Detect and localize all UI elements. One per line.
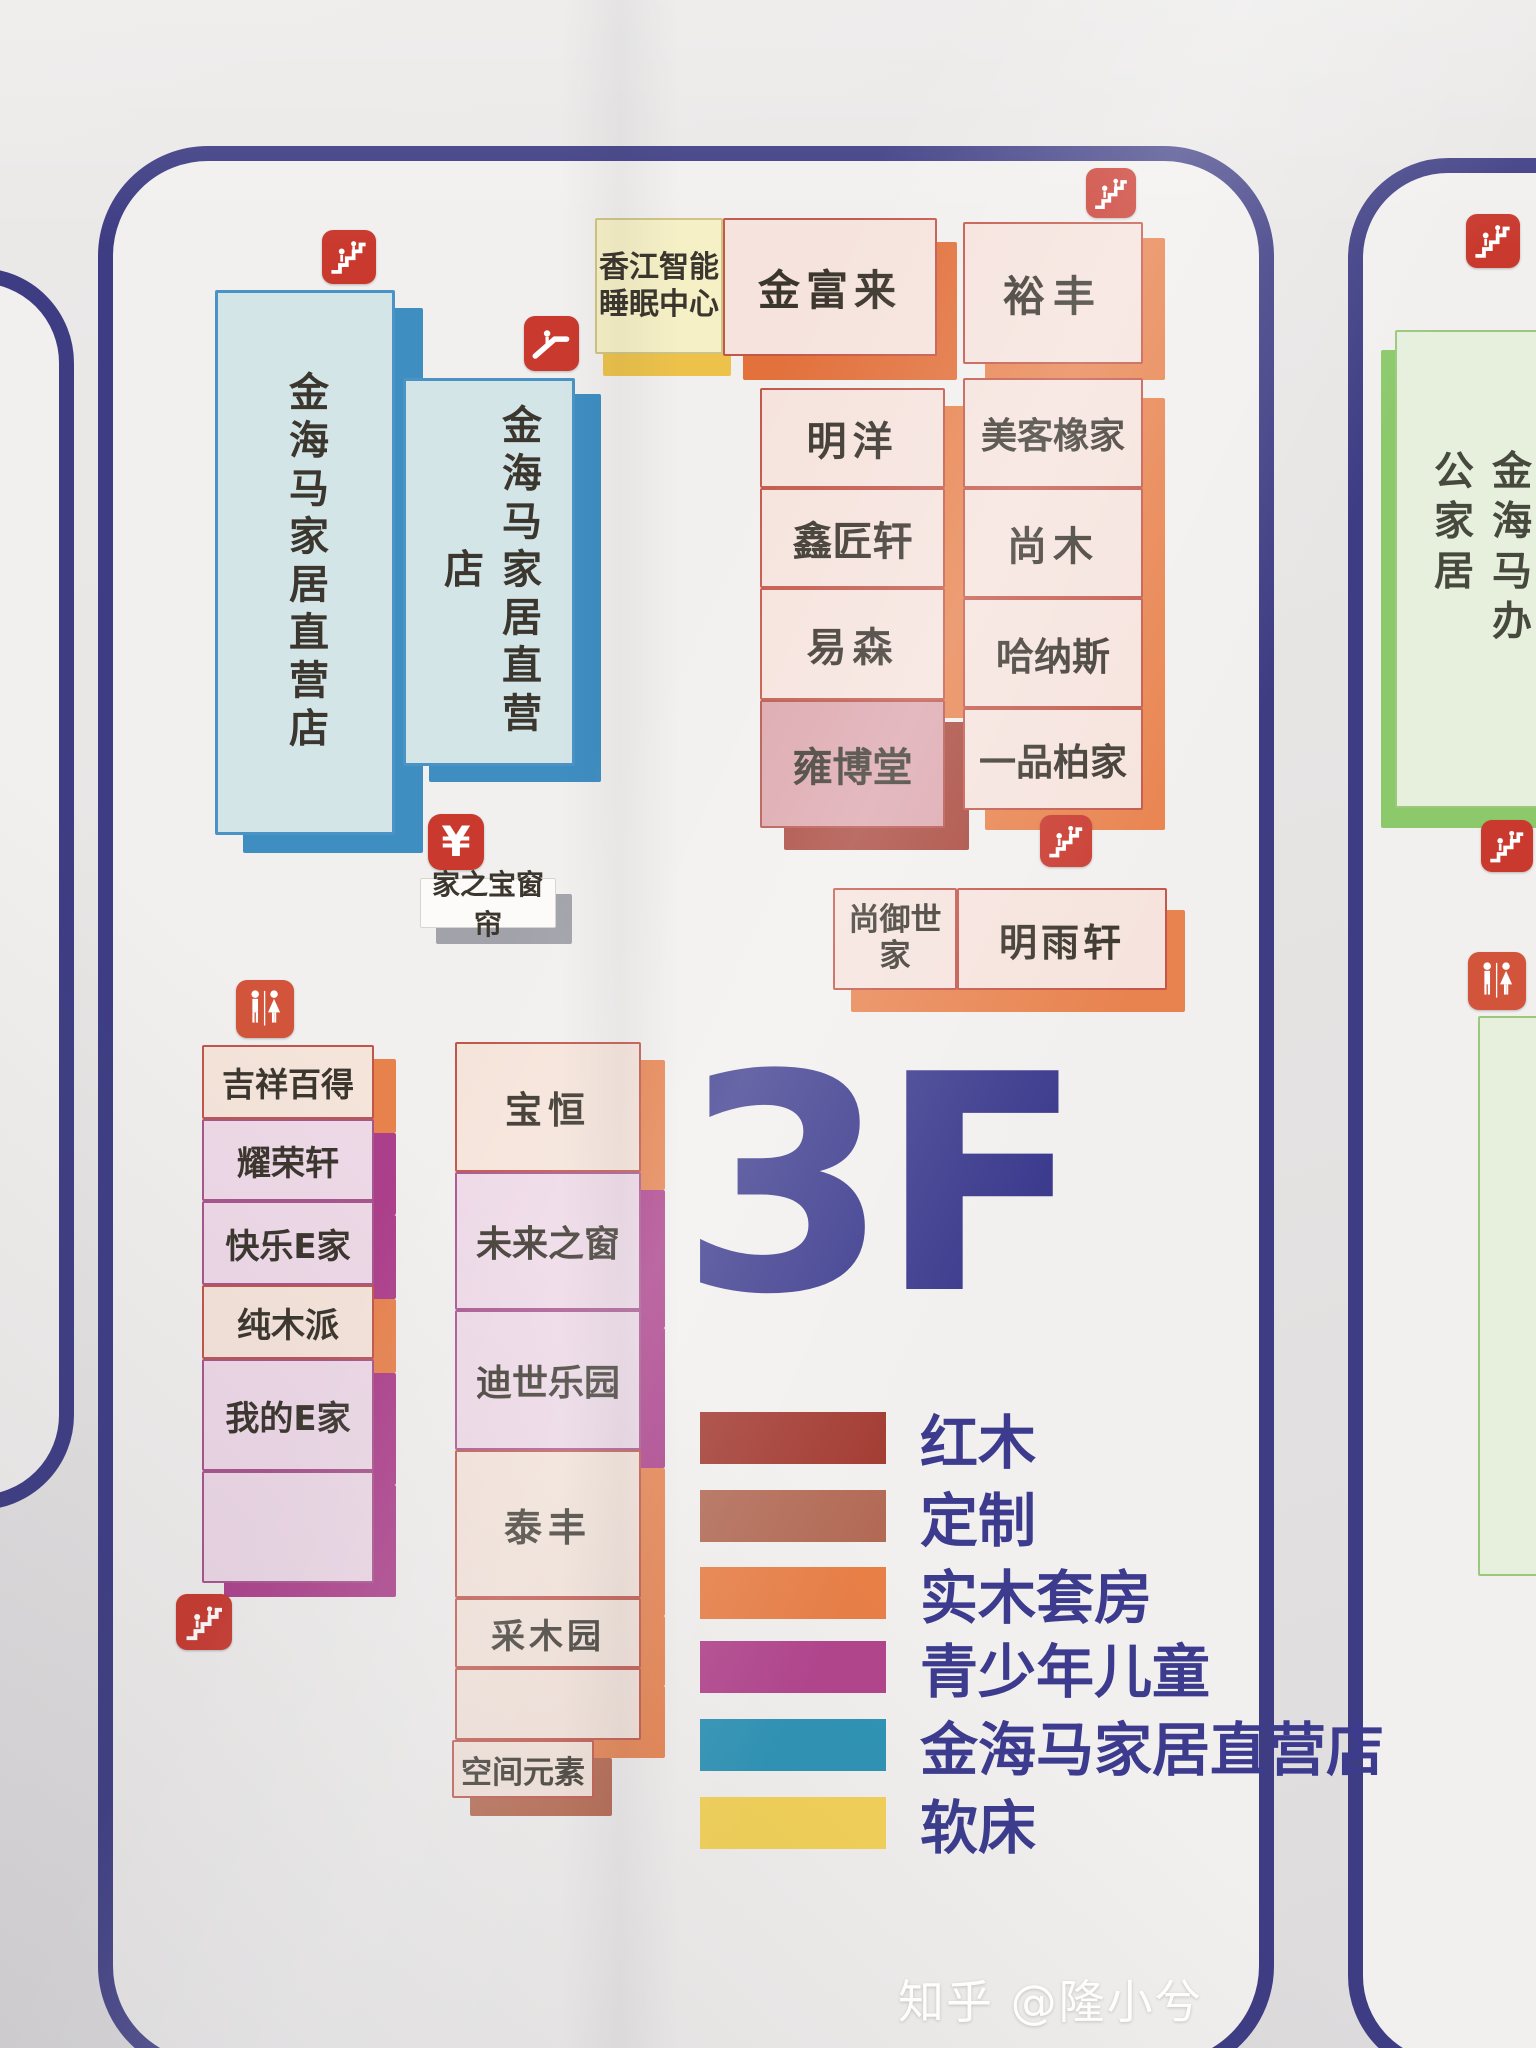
store-block-yipinbojia: 一品柏家 [963, 708, 1143, 810]
store-block-meikexiangjia: 美客橡家 [963, 378, 1143, 488]
store-block-unlabeled-mid [455, 1668, 641, 1740]
store-block-kuaileEjia: 快乐E家 [202, 1201, 374, 1285]
yuan-icon: ¥ [428, 814, 484, 870]
stairs-glyph [328, 236, 369, 277]
store-block-mingyuxuan: 明雨轩 [957, 888, 1167, 990]
stairs-icon [1040, 815, 1092, 867]
legend-swatch [700, 1490, 886, 1542]
legend-label: 实木套房 [920, 1551, 1152, 1635]
store-block-kongjianyuansu: 空间元素 [452, 1740, 594, 1798]
store-label: 哈纳斯 [963, 598, 1143, 708]
store-block-chunmupai: 纯木派 [202, 1285, 374, 1359]
legend-item-dingzhi: 定制 [700, 1474, 1036, 1558]
store-block-sleep-center: 香江智能睡眠中心 [595, 218, 723, 354]
legend-item-qingshaonianertong: 青少年儿童 [700, 1625, 1210, 1709]
store-label: 美客橡家 [963, 378, 1143, 488]
watermark: 知乎 @隆小兮 [898, 1966, 1203, 2032]
restroom-glyph [1474, 958, 1519, 1003]
stairs-icon [1466, 214, 1520, 268]
restroom-icon [1468, 952, 1526, 1010]
store-face [1478, 1016, 1536, 1576]
store-label: 我的E家 [202, 1359, 374, 1471]
store-block-jixiangbaide: 吉祥百得 [202, 1045, 374, 1119]
legend-label: 金海马家居直营店 [920, 1703, 1384, 1787]
legend-label: 软床 [920, 1781, 1036, 1865]
store-block-yongbotang: 雍博堂 [760, 700, 945, 828]
store-block-dishileyuan: 迪世乐园 [455, 1310, 641, 1450]
store-block-unlabeled-left [202, 1471, 374, 1583]
store-label: 快乐E家 [202, 1201, 374, 1285]
legend-item-ruanchuang: 软床 [700, 1781, 1036, 1865]
stairs-icon [176, 1594, 232, 1650]
store-label: 鑫匠轩 [760, 488, 945, 588]
store-block-weilaizhichuang: 未来之窗 [455, 1172, 641, 1310]
store-block-xinjiangxuan: 鑫匠轩 [760, 488, 945, 588]
store-label: 金海马办公家居 [1421, 450, 1536, 689]
store-label: 金海马家居直营店 [403, 378, 575, 766]
store-label: 尚御世家 [833, 888, 957, 990]
store-label: 迪世乐园 [455, 1310, 641, 1450]
store-label: 一品柏家 [963, 708, 1143, 810]
store-label: 明雨轩 [957, 888, 1167, 990]
store-label: 耀荣轩 [202, 1119, 374, 1201]
escalator-icon [524, 316, 579, 371]
store-label [455, 1668, 641, 1740]
store-block-shangyushijia: 尚御世家 [833, 888, 957, 990]
store-block-yufeng: 裕丰 [963, 222, 1143, 364]
store-label: 吉祥百得 [202, 1045, 374, 1119]
stairs-glyph [1487, 826, 1527, 866]
store-label: 宝恒 [455, 1042, 641, 1172]
store-block-baoheng: 宝恒 [455, 1042, 641, 1172]
stairs-glyph [1046, 821, 1086, 861]
restroom-glyph [242, 986, 287, 1031]
store-block-yaorongxuan: 耀荣轩 [202, 1119, 374, 1201]
store-label: 家之宝窗帘 [420, 878, 556, 928]
stairs-icon [322, 230, 376, 284]
store-label: 金海马家居直营店 [215, 290, 395, 835]
yuan-symbol: ¥ [441, 821, 470, 863]
store-block-shangmu: 尚木 [963, 488, 1143, 598]
stairs-icon [1481, 820, 1533, 872]
legend-swatch [700, 1412, 886, 1464]
store-label: 未来之窗 [455, 1172, 641, 1310]
legend-swatch [700, 1641, 886, 1693]
store-block-taifeng: 泰丰 [455, 1450, 641, 1598]
legend-swatch [700, 1567, 886, 1619]
legend-label: 红木 [920, 1396, 1036, 1480]
legend-item-hongmu: 红木 [700, 1396, 1036, 1480]
legend-item-shimutaofang: 实木套房 [700, 1551, 1152, 1635]
store-label: 尚木 [963, 488, 1143, 598]
stairs-glyph [183, 1601, 226, 1644]
store-label: 空间元素 [452, 1740, 594, 1798]
store-label: 香江智能睡眠中心 [595, 218, 723, 354]
floor-number: 3F [680, 1015, 1100, 1355]
restroom-icon [236, 980, 294, 1038]
stairs-glyph [1092, 174, 1130, 212]
legend-label: 定制 [920, 1474, 1036, 1558]
store-block-jinfulai: 金富来 [723, 218, 937, 356]
store-label: 金富来 [723, 218, 937, 356]
store-block-office-furniture: 金海马办公家居 [1395, 330, 1536, 808]
store-label: 易森 [760, 588, 945, 700]
stairs-glyph [1472, 220, 1513, 261]
legend-label: 青少年儿童 [920, 1625, 1210, 1709]
store-block-yisen: 易森 [760, 588, 945, 700]
stairs-icon [1086, 168, 1136, 218]
legend-item-zhiyingdian: 金海马家居直营店 [700, 1703, 1384, 1787]
store-block-green-unlabeled [1478, 1016, 1536, 1576]
store-label: 泰丰 [455, 1450, 641, 1598]
legend-swatch [700, 1719, 886, 1771]
store-block-direct-left: 金海马家居直营店 [215, 290, 395, 835]
store-label [202, 1471, 374, 1583]
store-block-wodeEjia: 我的E家 [202, 1359, 374, 1471]
store-label: 雍博堂 [760, 700, 945, 828]
store-label: 裕丰 [963, 222, 1143, 364]
store-label: 纯木派 [202, 1285, 374, 1359]
store-block-hanasi: 哈纳斯 [963, 598, 1143, 708]
store-label: 明洋 [760, 388, 945, 488]
store-block-direct-right: 金海马家居直营店 [403, 378, 575, 766]
left-partial-panel [0, 268, 74, 1510]
escalator-glyph [531, 323, 572, 364]
store-block-mingyang: 明洋 [760, 388, 945, 488]
store-block-curtain: 家之宝窗帘 [420, 878, 556, 928]
store-block-caimuyuan: 采木园 [455, 1598, 641, 1668]
legend-swatch [700, 1797, 886, 1849]
directory-sign-photo: 金海马家居直营店 金海马家居直营店 香江智能睡眠中心 金富来 裕丰 [0, 0, 1536, 2048]
store-label: 采木园 [455, 1598, 641, 1668]
